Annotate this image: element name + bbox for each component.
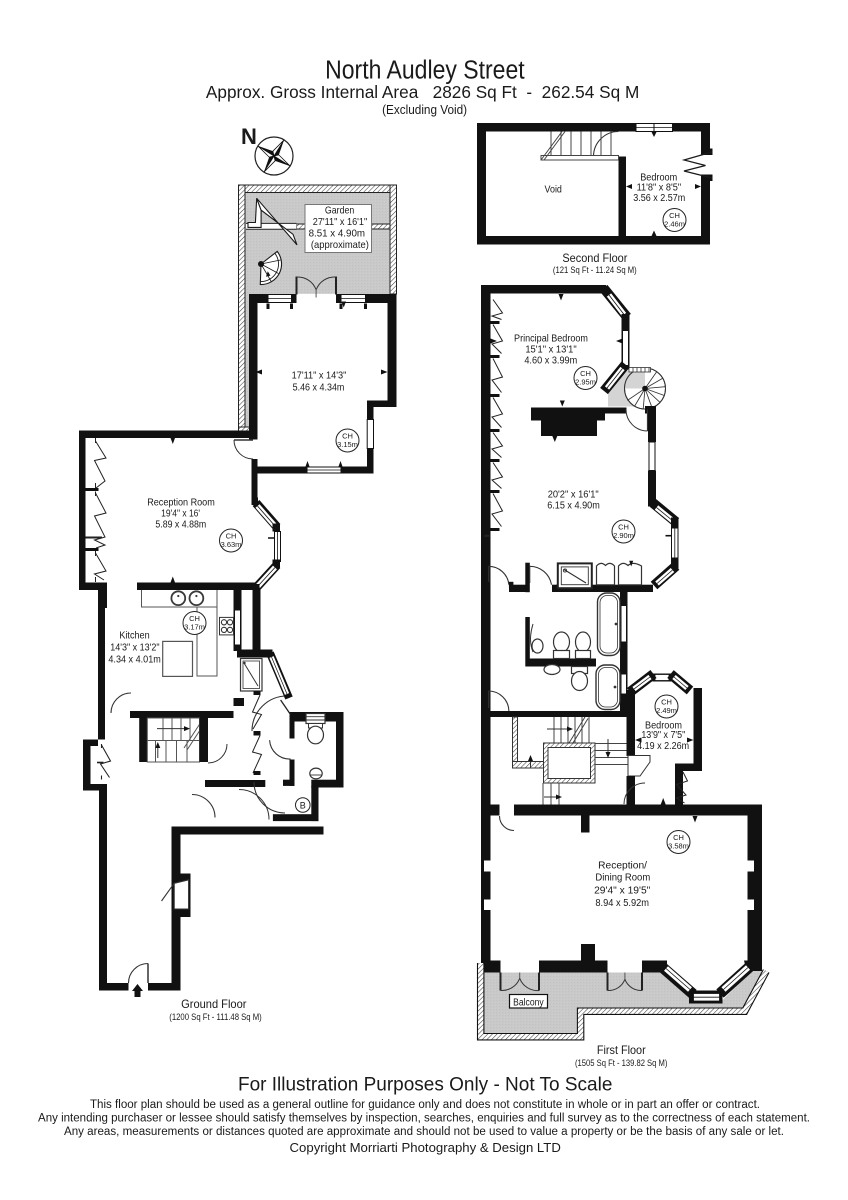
svg-text:5.46 x 4.34m: 5.46 x 4.34m bbox=[293, 383, 345, 394]
svg-text:Any areas, measurements or dis: Any areas, measurements or distances quo… bbox=[64, 1126, 784, 1138]
svg-text:Void: Void bbox=[545, 184, 562, 195]
svg-text:15'1" x 13'1": 15'1" x 13'1" bbox=[525, 344, 577, 355]
svg-text:3.17m: 3.17m bbox=[184, 623, 205, 632]
svg-text:3.58m: 3.58m bbox=[668, 842, 689, 851]
svg-text:Approx. Gross Internal Area: Approx. Gross Internal Area 2826 Sq Ft -… bbox=[206, 82, 639, 102]
svg-text:4.60 x 3.99m: 4.60 x 3.99m bbox=[524, 356, 577, 367]
svg-text:2.95m: 2.95m bbox=[575, 378, 596, 387]
svg-text:B: B bbox=[300, 801, 306, 811]
svg-text:Reception/: Reception/ bbox=[598, 860, 647, 871]
svg-text:(1200 Sq Ft - 111.48 Sq M): (1200 Sq Ft - 111.48 Sq M) bbox=[169, 1012, 262, 1022]
svg-text:11'8" x 8'5": 11'8" x 8'5" bbox=[637, 183, 682, 194]
svg-text:For Illustration Purposes Only: For Illustration Purposes Only - Not To … bbox=[238, 1074, 612, 1096]
svg-text:19'4" x 16': 19'4" x 16' bbox=[161, 509, 200, 520]
svg-text:3.15m: 3.15m bbox=[337, 440, 358, 449]
svg-text:North Audley Street: North Audley Street bbox=[325, 57, 525, 85]
svg-text:27'11" x 16'1": 27'11" x 16'1" bbox=[313, 216, 368, 228]
svg-text:Principal Bedroom: Principal Bedroom bbox=[514, 334, 588, 345]
svg-text:Balcony: Balcony bbox=[513, 998, 544, 1009]
svg-text:8.94 x 5.92m: 8.94 x 5.92m bbox=[595, 898, 649, 909]
svg-text:3.56 x 2.57m: 3.56 x 2.57m bbox=[633, 193, 685, 204]
svg-text:6.15 x 4.90m: 6.15 x 4.90m bbox=[547, 501, 600, 512]
svg-text:29'4" x 19'5": 29'4" x 19'5" bbox=[594, 886, 651, 897]
svg-text:(1505 Sq Ft - 139.82 Sq M): (1505 Sq Ft - 139.82 Sq M) bbox=[575, 1058, 667, 1068]
svg-text:17'11" x 14'3": 17'11" x 14'3" bbox=[292, 371, 347, 382]
svg-text:20'2" x 16'1": 20'2" x 16'1" bbox=[548, 489, 599, 500]
svg-text:2.49m: 2.49m bbox=[656, 706, 677, 715]
svg-text:8.51 x 4.90m: 8.51 x 4.90m bbox=[309, 228, 366, 240]
svg-text:Reception Room: Reception Room bbox=[147, 498, 215, 509]
svg-text:N: N bbox=[241, 124, 257, 149]
svg-text:Dining Room: Dining Room bbox=[595, 873, 650, 884]
svg-text:Second Floor: Second Floor bbox=[562, 251, 627, 265]
svg-text:Any intending purchaser or les: Any intending purchaser or lessee should… bbox=[38, 1112, 810, 1124]
svg-text:(Excluding Void): (Excluding Void) bbox=[382, 103, 467, 117]
svg-text:This floor plan should be used: This floor plan should be used as a gene… bbox=[90, 1099, 760, 1111]
svg-text:First Floor: First Floor bbox=[597, 1043, 646, 1057]
svg-text:(approximate): (approximate) bbox=[311, 239, 369, 251]
svg-text:4.19 x 2.26m: 4.19 x 2.26m bbox=[637, 741, 689, 752]
svg-text:13'9" x 7'5": 13'9" x 7'5" bbox=[641, 730, 685, 741]
svg-text:Copyright Morriarti Photograph: Copyright Morriarti Photography & Design… bbox=[290, 1140, 561, 1155]
svg-text:3.63m: 3.63m bbox=[221, 540, 242, 549]
svg-text:5.89 x 4.88m: 5.89 x 4.88m bbox=[155, 520, 206, 531]
svg-text:2.90m: 2.90m bbox=[613, 531, 634, 540]
svg-text:4.34 x 4.01m: 4.34 x 4.01m bbox=[108, 655, 160, 666]
svg-text:Kitchen: Kitchen bbox=[119, 630, 149, 641]
svg-text:14'3" x 13'2": 14'3" x 13'2" bbox=[110, 643, 160, 654]
svg-text:Ground Floor: Ground Floor bbox=[181, 997, 246, 1011]
svg-text:(121 Sq Ft - 11.24 Sq M): (121 Sq Ft - 11.24 Sq M) bbox=[553, 265, 637, 275]
svg-text:2.46m: 2.46m bbox=[664, 220, 685, 229]
svg-text:Garden: Garden bbox=[325, 205, 355, 217]
